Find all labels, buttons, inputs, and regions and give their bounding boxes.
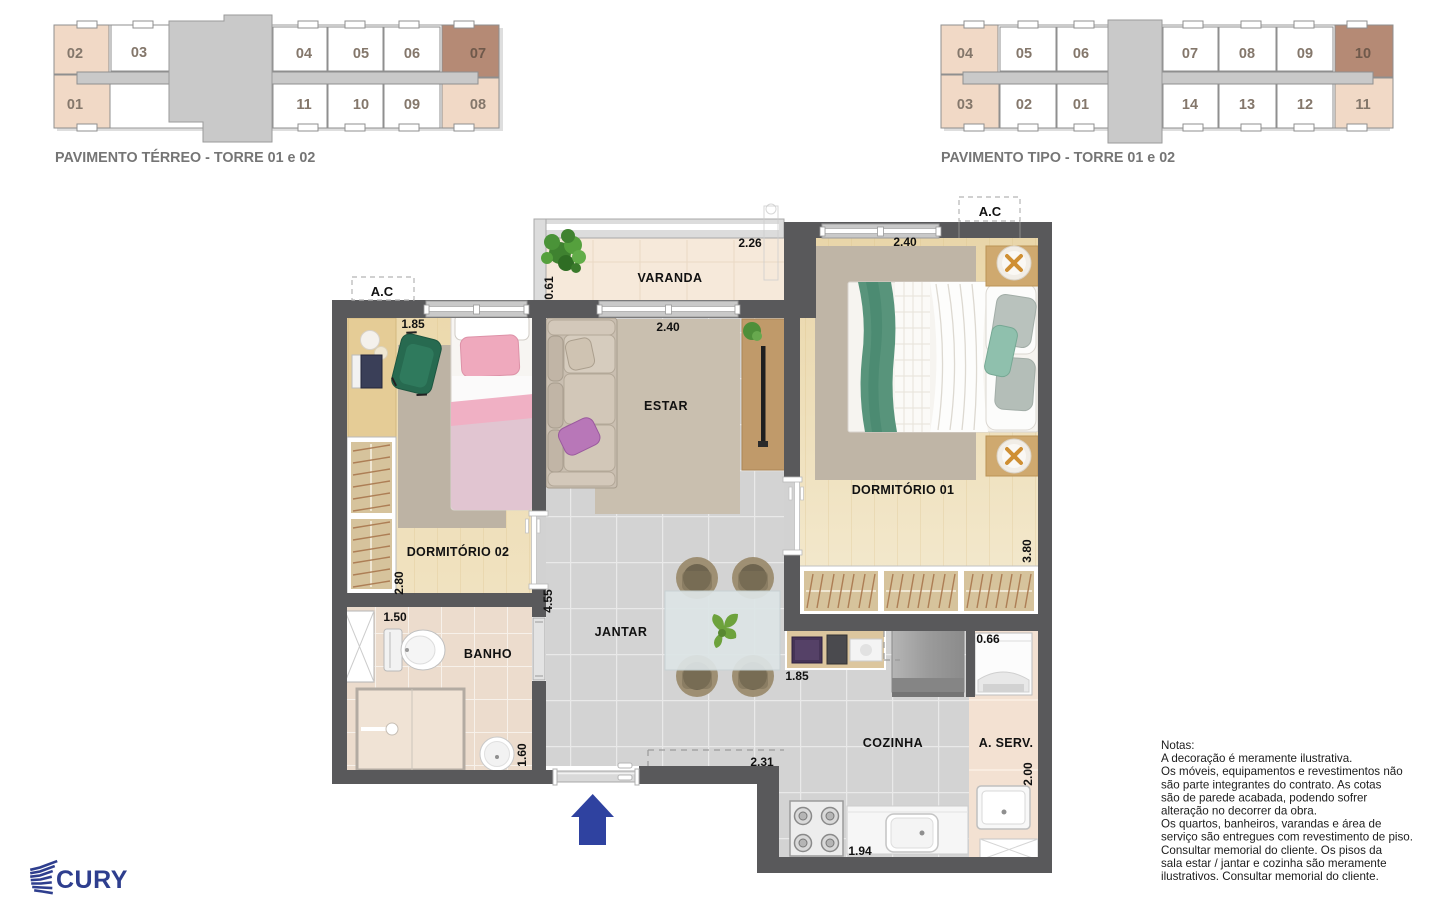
svg-text:14: 14 xyxy=(1182,97,1198,113)
svg-text:sala estar / jantar e cozinha: sala estar / jantar e cozinha são merame… xyxy=(1161,857,1387,870)
svg-text:PAVIMENTO TÉRREO - TORRE 01 e: PAVIMENTO TÉRREO - TORRE 01 e 02 xyxy=(55,149,315,166)
svg-text:alteração no decorrer da obra.: alteração no decorrer da obra. xyxy=(1161,805,1317,818)
svg-text:4.55: 4.55 xyxy=(541,589,555,613)
svg-text:2.26: 2.26 xyxy=(738,236,762,250)
svg-text:01: 01 xyxy=(1073,97,1089,113)
svg-text:1.60: 1.60 xyxy=(515,743,529,767)
svg-text:09: 09 xyxy=(1297,46,1313,62)
svg-text:1.85: 1.85 xyxy=(785,669,809,683)
svg-text:1.94: 1.94 xyxy=(848,844,872,858)
svg-text:11: 11 xyxy=(1355,97,1370,113)
svg-text:COZINHA: COZINHA xyxy=(863,736,923,750)
svg-text:10: 10 xyxy=(353,97,369,113)
svg-text:06: 06 xyxy=(1073,46,1089,62)
svg-text:02: 02 xyxy=(67,46,83,62)
svg-text:08: 08 xyxy=(1239,46,1255,62)
svg-text:07: 07 xyxy=(1182,46,1198,62)
svg-text:02: 02 xyxy=(1016,97,1032,113)
svg-text:ESTAR: ESTAR xyxy=(644,399,688,413)
svg-text:13: 13 xyxy=(1239,97,1255,113)
svg-text:03: 03 xyxy=(957,97,973,113)
svg-text:05: 05 xyxy=(1016,46,1032,62)
svg-text:A decoração é meramente ilustr: A decoração é meramente ilustrativa. xyxy=(1161,752,1352,765)
svg-text:06: 06 xyxy=(404,46,420,62)
svg-text:10: 10 xyxy=(1355,46,1371,62)
svg-text:PAVIMENTO TIPO - TORRE 01 e 02: PAVIMENTO TIPO - TORRE 01 e 02 xyxy=(941,150,1175,166)
svg-text:0.61: 0.61 xyxy=(542,276,556,300)
svg-text:1.85: 1.85 xyxy=(401,317,425,331)
svg-text:serviço são entregues com reve: serviço são entregues com revestimento d… xyxy=(1161,831,1413,844)
svg-text:2.31: 2.31 xyxy=(750,755,774,769)
svg-text:03: 03 xyxy=(131,45,147,61)
svg-text:2.40: 2.40 xyxy=(893,235,917,249)
svg-text:05: 05 xyxy=(353,46,369,62)
svg-text:01: 01 xyxy=(67,97,83,113)
svg-text:09: 09 xyxy=(404,97,420,113)
svg-text:3.80: 3.80 xyxy=(1020,539,1034,563)
svg-text:são parte integrantes do contr: são parte integrantes do contrato. As co… xyxy=(1161,778,1382,791)
svg-text:1.50: 1.50 xyxy=(383,610,407,624)
svg-text:A.C: A.C xyxy=(979,204,1002,219)
svg-text:07: 07 xyxy=(470,46,486,62)
svg-text:Os quartos, banheiros, varanda: Os quartos, banheiros, varandas e área d… xyxy=(1161,818,1381,831)
svg-text:12: 12 xyxy=(1297,97,1313,113)
svg-text:ilustrativos. Consultar memori: ilustrativos. Consultar memorial do clie… xyxy=(1161,870,1379,883)
svg-text:2.40: 2.40 xyxy=(656,320,680,334)
svg-text:Consultar memorial do cliente.: Consultar memorial do cliente. Os pisos … xyxy=(1161,844,1383,857)
svg-text:VARANDA: VARANDA xyxy=(637,271,702,285)
svg-text:JANTAR: JANTAR xyxy=(595,625,648,639)
svg-text:A. SERV.: A. SERV. xyxy=(979,736,1034,750)
svg-text:04: 04 xyxy=(957,46,973,62)
svg-text:DORMITÓRIO 01: DORMITÓRIO 01 xyxy=(852,482,955,497)
svg-text:Notas:: Notas: xyxy=(1161,739,1195,752)
svg-text:A.C: A.C xyxy=(371,284,394,299)
svg-text:2.80: 2.80 xyxy=(392,571,406,595)
svg-text:08: 08 xyxy=(470,97,486,113)
svg-text:BANHO: BANHO xyxy=(464,647,512,661)
svg-text:11: 11 xyxy=(296,97,311,113)
svg-text:0.66: 0.66 xyxy=(976,632,1000,646)
svg-text:2.00: 2.00 xyxy=(1021,762,1035,786)
svg-text:CURY: CURY xyxy=(56,866,128,894)
svg-text:Os móveis, equipamentos e reve: Os móveis, equipamentos e revestimentos … xyxy=(1161,765,1403,778)
svg-text:04: 04 xyxy=(296,46,312,62)
svg-text:DORMITÓRIO 02: DORMITÓRIO 02 xyxy=(407,544,510,559)
svg-text:são de parede acabada, podendo: são de parede acabada, podendo sofrer xyxy=(1161,791,1367,804)
